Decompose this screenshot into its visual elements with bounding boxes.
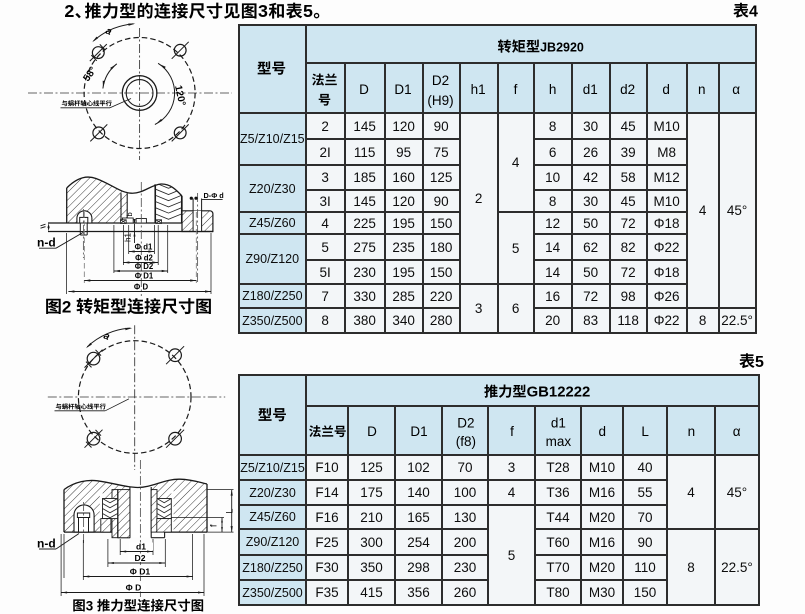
svg-text:2: 2 (64, 1, 74, 21)
svg-text:5: 5 (303, 1, 313, 21)
svg-text:D2: D2 (457, 416, 474, 431)
svg-text:3: 3 (258, 1, 268, 21)
svg-text:Φ D1: Φ D1 (130, 567, 151, 577)
svg-text:d2: d2 (620, 82, 635, 97)
svg-text:a: a (104, 26, 114, 38)
svg-text:120°: 120° (172, 84, 187, 107)
svg-text:(H9): (H9) (427, 93, 453, 108)
svg-text:4: 4 (749, 3, 758, 20)
svg-text:Φ D2: Φ D2 (135, 262, 154, 271)
svg-text:h: h (549, 82, 557, 97)
svg-text:3: 3 (86, 598, 93, 613)
svg-text:max: max (546, 434, 572, 449)
svg-text:(f8): (f8) (456, 434, 476, 449)
svg-text:a: a (102, 331, 112, 343)
svg-text:D-Φ d: D-Φ d (204, 191, 224, 200)
svg-text:h1: h1 (124, 232, 133, 242)
svg-text:Φ D1: Φ D1 (135, 271, 154, 280)
svg-text:JB2920: JB2920 (540, 41, 584, 55)
svg-text:f: f (510, 424, 514, 439)
svg-text:f: f (209, 524, 219, 527)
svg-text:D2: D2 (135, 553, 146, 563)
svg-text:n-d: n-d (37, 235, 56, 249)
svg-text:L: L (225, 508, 235, 513)
svg-text:d1: d1 (583, 82, 598, 97)
svg-text:Φ D: Φ D (134, 282, 149, 291)
svg-text:5: 5 (755, 354, 764, 371)
svg-text:d: d (662, 82, 670, 97)
svg-text:α: α (733, 424, 741, 439)
svg-text:n: n (698, 82, 706, 97)
svg-text:GB12222: GB12222 (527, 385, 591, 401)
svg-text:2: 2 (62, 298, 71, 317)
svg-text:d1: d1 (551, 416, 566, 431)
svg-text:D1: D1 (394, 82, 411, 97)
svg-text:D: D (367, 424, 377, 439)
svg-text:d: d (599, 424, 607, 439)
svg-text:58°: 58° (81, 65, 99, 84)
svg-text:D2: D2 (432, 73, 449, 88)
svg-text:Φ d1: Φ d1 (135, 242, 153, 251)
svg-text:f: f (514, 82, 518, 97)
svg-text:d1: d1 (136, 542, 146, 552)
svg-text:L: L (641, 424, 649, 439)
svg-text:n-d: n-d (37, 536, 56, 550)
svg-text:n: n (688, 424, 696, 439)
svg-text:D1: D1 (410, 424, 427, 439)
svg-text:b: b (125, 212, 134, 216)
svg-text:D: D (359, 82, 369, 97)
svg-text:α: α (732, 82, 740, 97)
svg-text:Φ D: Φ D (126, 583, 142, 593)
svg-text:h1: h1 (471, 82, 486, 97)
